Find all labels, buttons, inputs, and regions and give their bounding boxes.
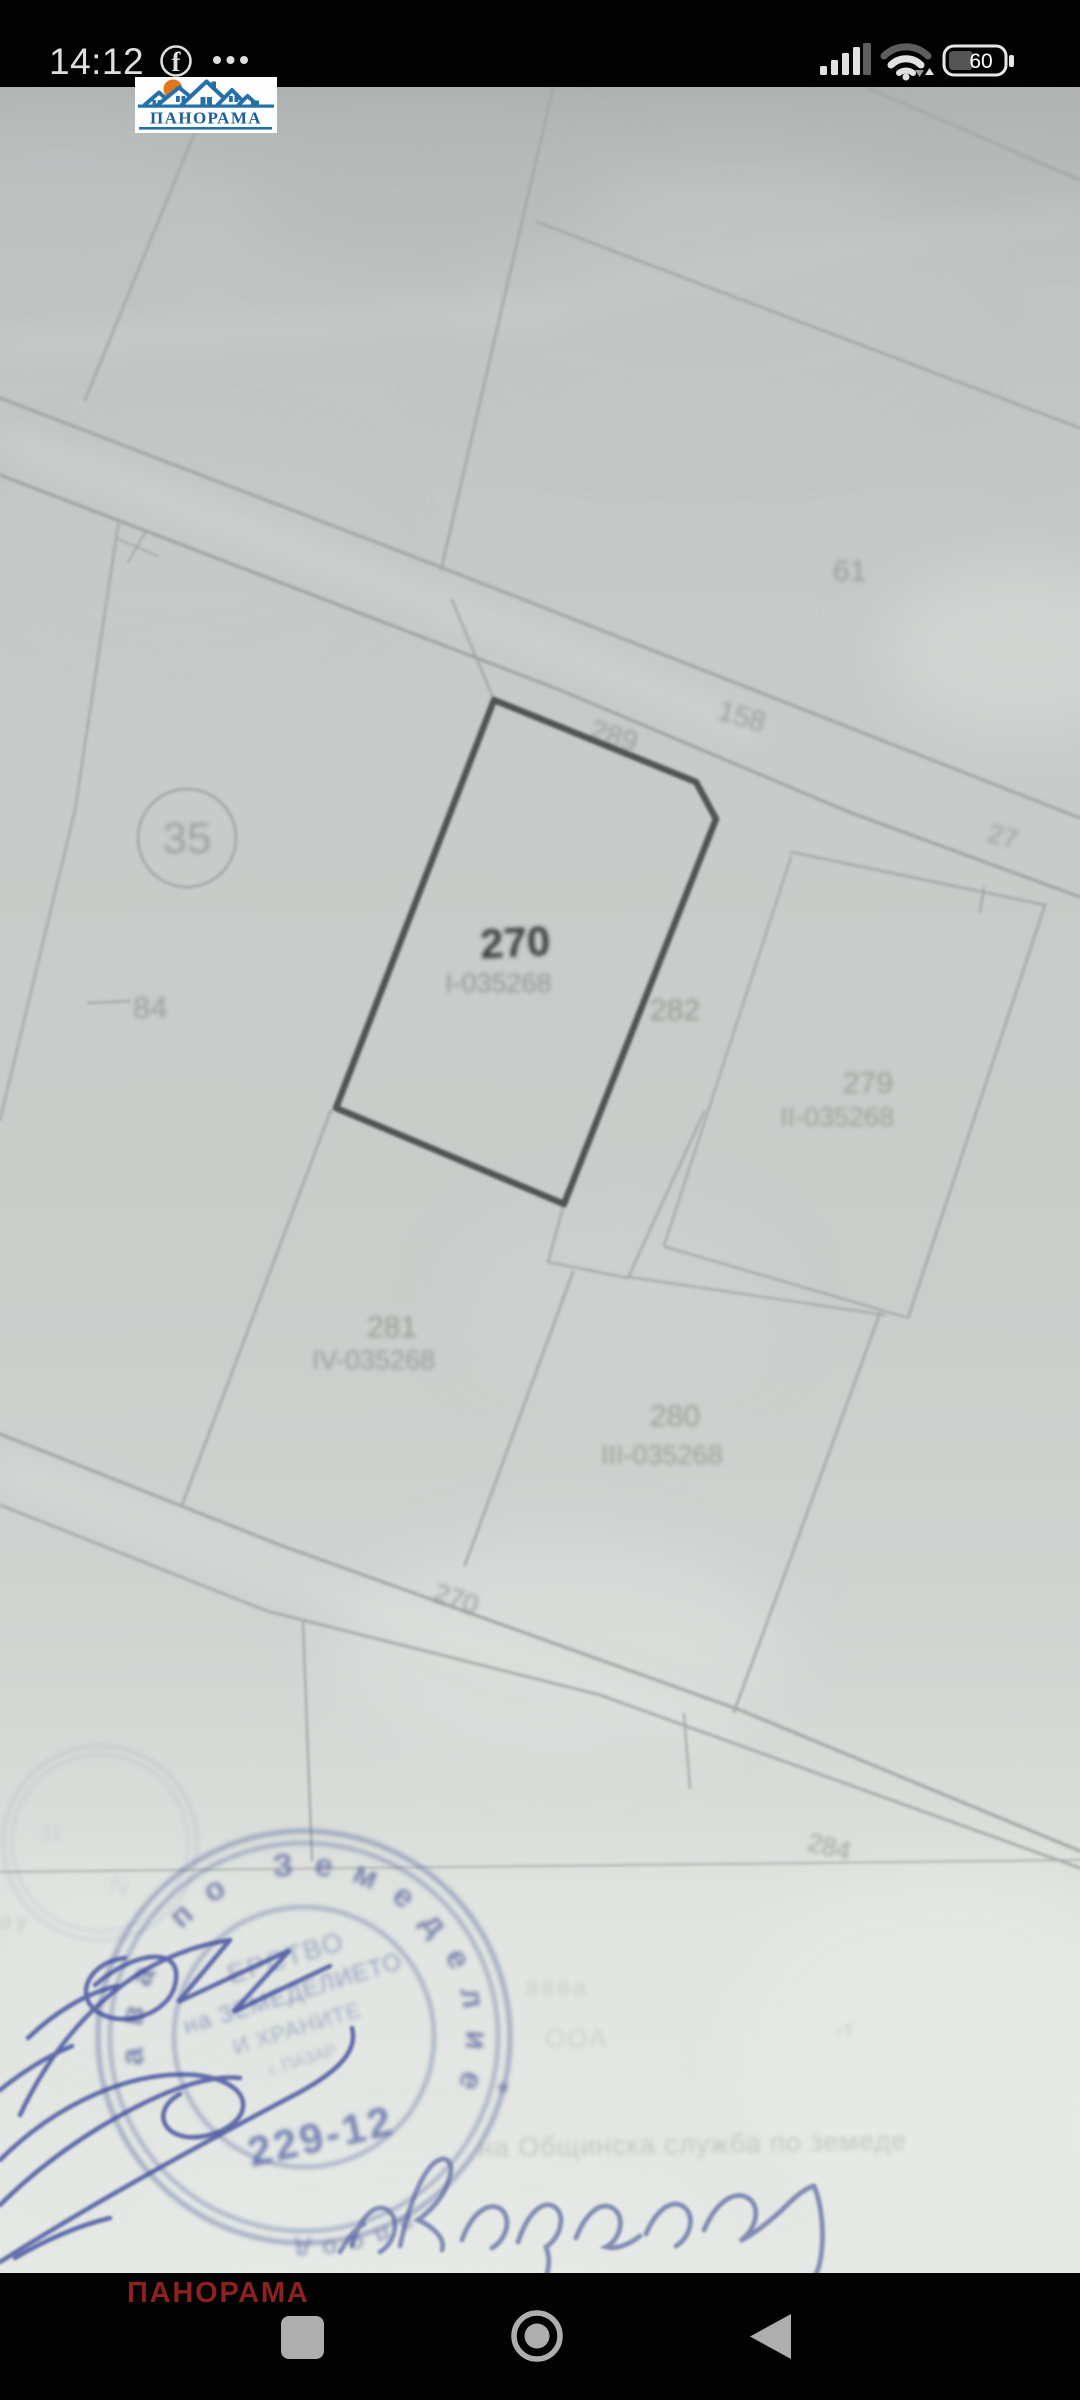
svg-text:IV-035268: IV-035268 xyxy=(312,1345,435,1375)
svg-text:60: 60 xyxy=(969,50,992,73)
svg-text:31: 31 xyxy=(40,1823,62,1845)
svg-text:II-035268: II-035268 xyxy=(780,1102,894,1132)
svg-text:84: 84 xyxy=(133,990,167,1025)
svg-text:279: 279 xyxy=(843,1067,893,1100)
svg-text:f: f xyxy=(172,47,182,77)
svg-text:-т: -т xyxy=(836,2017,853,2042)
svg-text:270: 270 xyxy=(479,917,551,968)
svg-text:о у: о у xyxy=(0,1911,27,1933)
svg-text:авва: авва xyxy=(525,1974,589,2001)
svg-text:280: 280 xyxy=(650,1400,700,1433)
svg-text:61: 61 xyxy=(833,555,866,588)
svg-text:III-035268: III-035268 xyxy=(601,1440,723,1470)
svg-text:281: 281 xyxy=(367,1311,417,1344)
svg-text:ООА: ООА xyxy=(545,2023,608,2053)
svg-text:282: 282 xyxy=(650,994,700,1027)
svg-text:35: 35 xyxy=(163,814,212,863)
svg-text:I-035268: I-035268 xyxy=(445,968,552,998)
svg-text:ПАНОРАМА: ПАНОРАМА xyxy=(150,109,262,128)
